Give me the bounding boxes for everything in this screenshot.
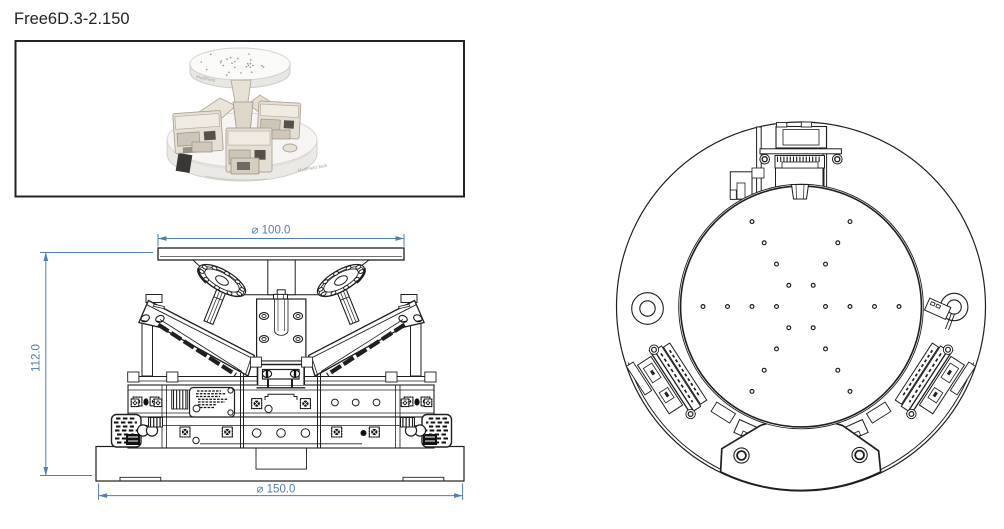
svg-text:Free6D.3-2.150: Free6D.3-2.150 <box>14 10 130 28</box>
svg-text:⌀ 150.0: ⌀ 150.0 <box>257 483 296 495</box>
svg-text:⌀ 100.0: ⌀ 100.0 <box>252 225 291 237</box>
svg-text:112.0: 112.0 <box>31 344 43 372</box>
